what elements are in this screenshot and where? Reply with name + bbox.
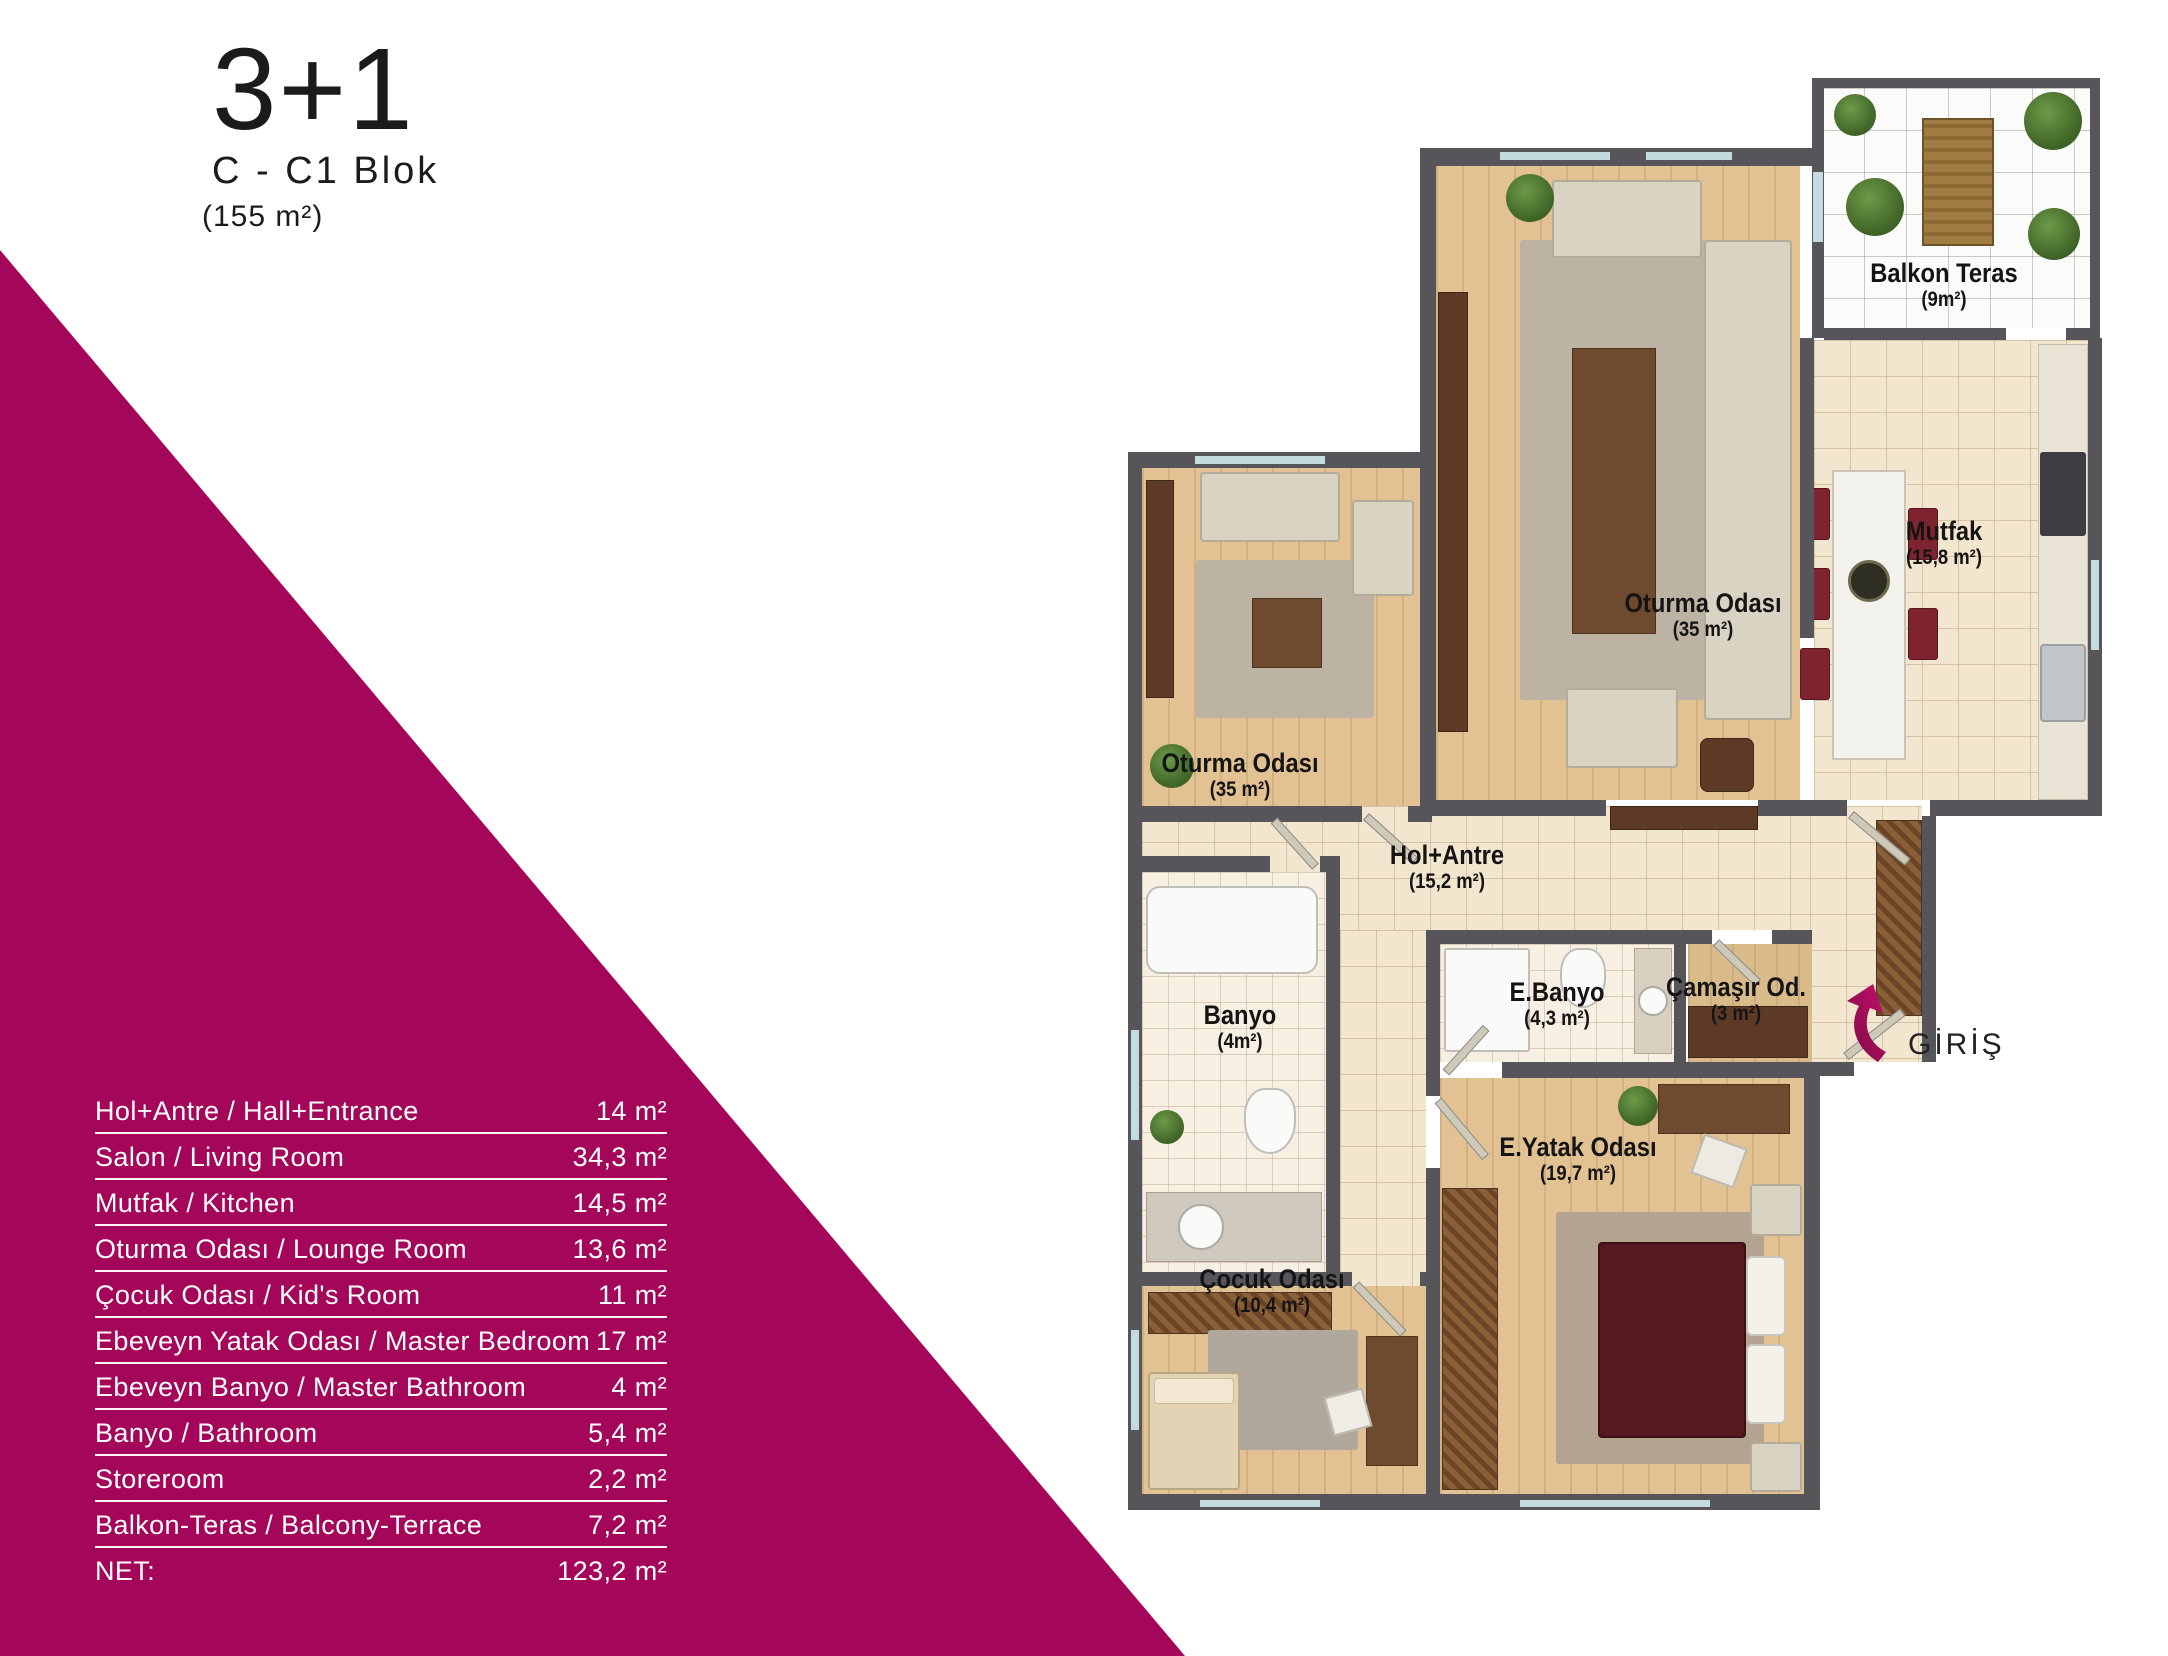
wall xyxy=(1426,1078,1440,1096)
side-table xyxy=(1700,738,1754,792)
wall xyxy=(1772,930,1812,944)
plant xyxy=(1618,1086,1658,1126)
armchair xyxy=(1566,688,1678,768)
wall xyxy=(1420,1272,1440,1286)
label-bathroom: Banyo (4m²) xyxy=(1204,1000,1277,1054)
wall xyxy=(1824,328,2006,340)
kitchen-counter xyxy=(2038,344,2088,800)
wall xyxy=(1426,930,1712,944)
wall xyxy=(1804,1070,1820,1510)
wall xyxy=(1408,806,1432,822)
plant xyxy=(1150,1110,1184,1144)
pillow xyxy=(1746,1256,1786,1336)
sofa xyxy=(1552,180,1702,258)
label-balcony: Balkon Teras (9m²) xyxy=(1870,258,2017,312)
window xyxy=(1646,152,1732,160)
coffee-table xyxy=(1252,598,1322,668)
pillow xyxy=(1746,1344,1786,1424)
sofa xyxy=(1704,240,1792,720)
tv-unit xyxy=(1146,480,1174,698)
nightstand xyxy=(1750,1184,1802,1236)
wall xyxy=(1800,338,1814,638)
plant xyxy=(1846,178,1904,236)
label-laundry: Çamaşır Od. (3 m²) xyxy=(1666,972,1806,1026)
sink xyxy=(2040,644,2086,722)
wall xyxy=(1420,148,1436,816)
wall xyxy=(2066,328,2090,340)
floor-plan: Balkon Teras (9m²) Mutfak (15,8 m²) Otur… xyxy=(0,0,2168,1656)
wardrobe xyxy=(1442,1188,1498,1490)
wall xyxy=(1930,800,2102,816)
table-decor xyxy=(1848,560,1890,602)
wall xyxy=(1426,1168,1440,1494)
desk xyxy=(1658,1084,1790,1134)
window xyxy=(1131,1030,1139,1140)
bathtub xyxy=(1146,886,1318,974)
balcony-table xyxy=(1922,118,1994,246)
hall-console xyxy=(1610,806,1758,830)
wall xyxy=(1326,856,1340,1286)
dining-chair xyxy=(1908,608,1938,660)
tv-unit xyxy=(1438,292,1468,732)
plant xyxy=(2028,208,2080,260)
label-kids-room: Çocuk Odası (10,4 m²) xyxy=(1199,1264,1344,1318)
desk xyxy=(1366,1336,1418,1466)
label-hall: Hol+Antre (15,2 m²) xyxy=(1390,840,1504,894)
label-master-bath: E.Banyo (4,3 m²) xyxy=(1509,977,1604,1031)
plant xyxy=(1834,94,1876,136)
window xyxy=(1200,1500,1320,1507)
stove xyxy=(2040,452,2086,536)
wall xyxy=(1128,806,1362,822)
wall xyxy=(1426,944,1440,1062)
dining-chair xyxy=(1800,648,1830,700)
wash-basin xyxy=(1178,1204,1224,1250)
label-living-room: Oturma Odası (35 m²) xyxy=(1624,588,1781,642)
entrance-arrow-icon xyxy=(1838,984,1898,1062)
wall xyxy=(1420,148,1820,166)
hall-vertical-floor xyxy=(1340,930,1426,1286)
label-lounge-room: Oturma Odası (35 m²) xyxy=(1161,748,1318,802)
window xyxy=(1520,1500,1710,1507)
plant xyxy=(1506,174,1554,222)
wall xyxy=(1922,816,1936,1062)
pillow xyxy=(1154,1378,1234,1404)
plant xyxy=(2024,92,2082,150)
window xyxy=(1131,1330,1139,1430)
wall xyxy=(1812,78,2100,88)
brochure-page: 3+1 C - C1 Blok (155 m²) Hol+Antre / Hal… xyxy=(0,0,2168,1656)
double-bed xyxy=(1598,1242,1746,1438)
window xyxy=(2091,560,2099,650)
armchair xyxy=(1352,500,1414,596)
window xyxy=(1195,456,1325,464)
label-master-bedroom: E.Yatak Odası (19,7 m²) xyxy=(1499,1132,1656,1186)
dining-table xyxy=(1832,470,1906,760)
balcony-door-glass xyxy=(1813,172,1823,242)
wash-basin xyxy=(1638,986,1668,1016)
label-kitchen: Mutfak (15,8 m²) xyxy=(1906,516,1983,570)
wall xyxy=(1420,800,1606,816)
wall xyxy=(1426,1062,1440,1078)
wall xyxy=(1795,800,1847,816)
wall xyxy=(1758,800,1800,816)
window xyxy=(1500,152,1610,160)
sofa xyxy=(1200,472,1340,542)
vanity xyxy=(1146,1192,1322,1262)
wall xyxy=(1128,856,1270,872)
toilet xyxy=(1244,1088,1296,1154)
entrance-label: GİRİŞ xyxy=(1908,1028,2005,1062)
wall xyxy=(1502,1062,1816,1078)
nightstand xyxy=(1750,1442,1802,1492)
wall xyxy=(2090,78,2100,340)
